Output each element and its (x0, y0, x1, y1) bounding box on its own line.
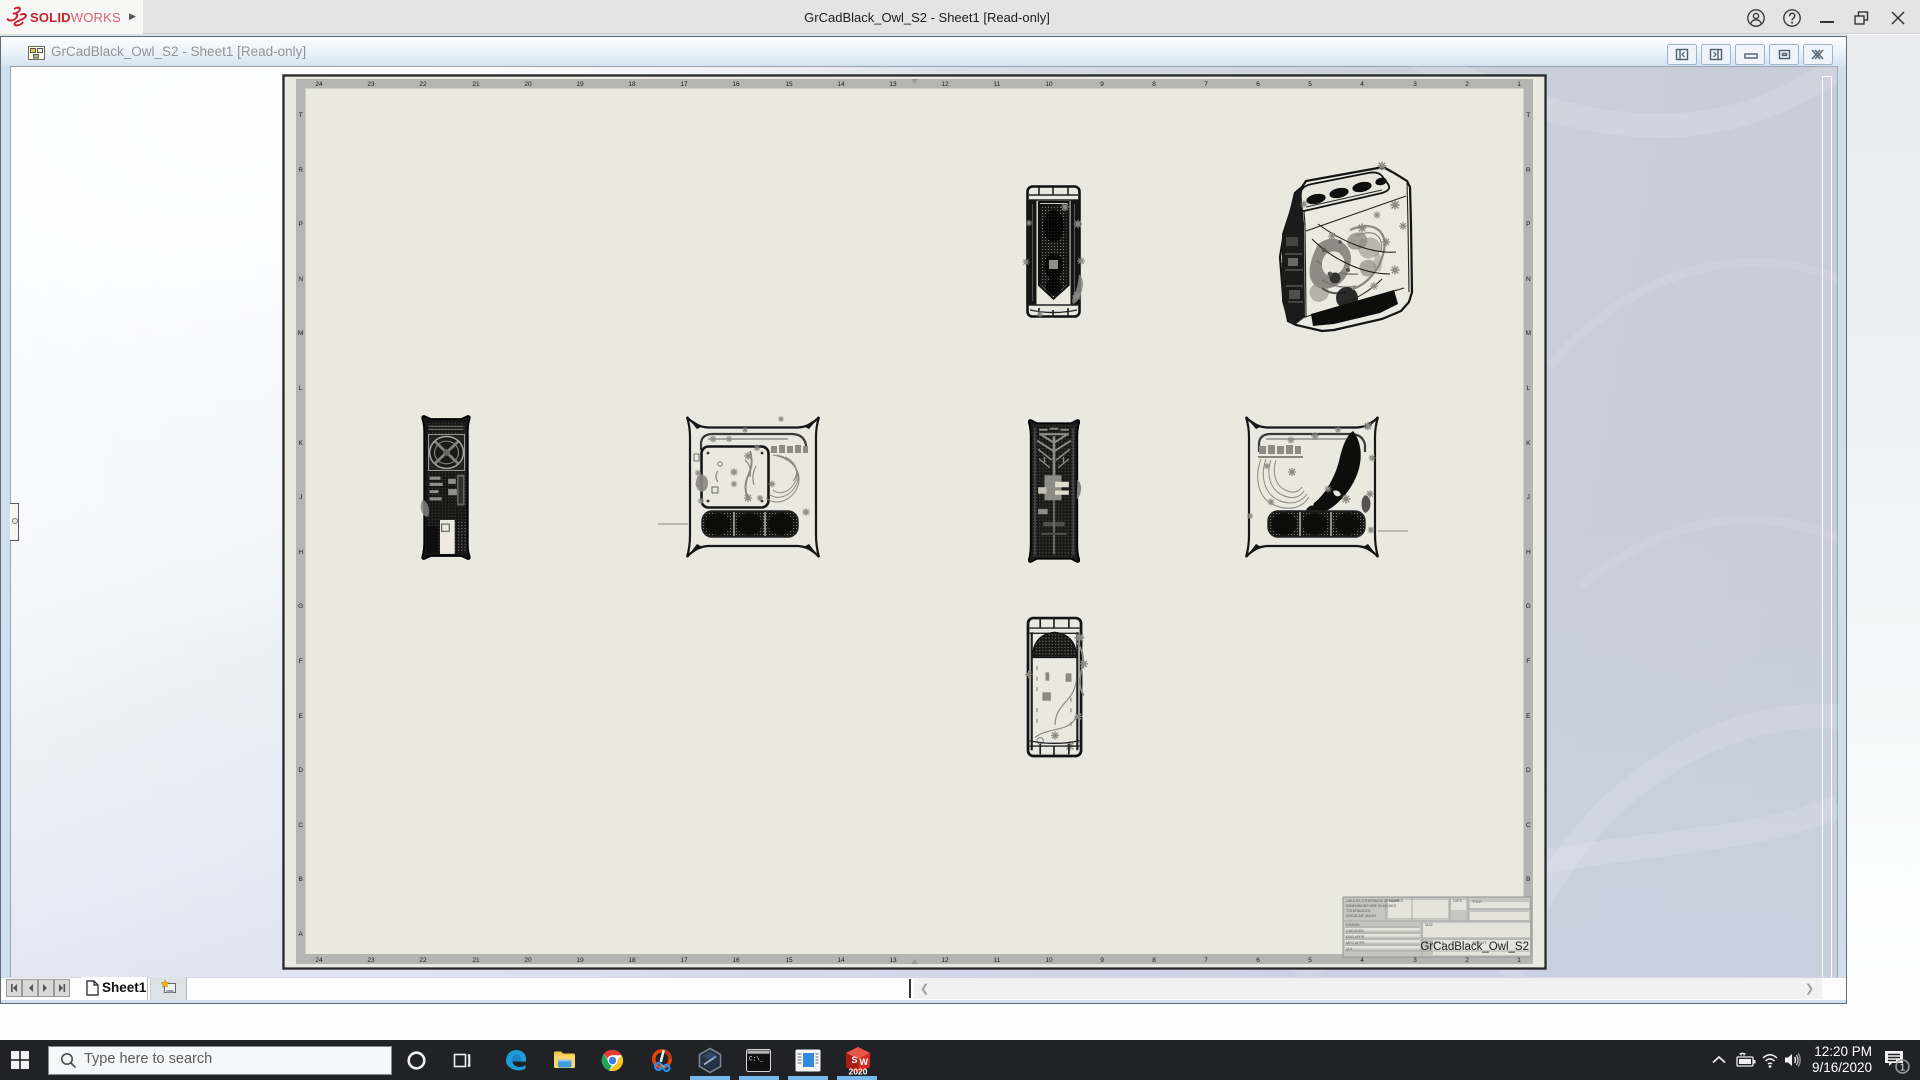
svg-text:14: 14 (837, 957, 845, 964)
svg-text:L: L (1526, 385, 1530, 392)
svg-text:6: 6 (1256, 957, 1260, 964)
svg-text:20: 20 (524, 81, 532, 88)
svg-text:K: K (1526, 440, 1531, 447)
svg-text:Q.A.: Q.A. (1346, 947, 1353, 951)
svg-text:12: 12 (941, 957, 949, 964)
svg-text:G: G (298, 603, 303, 610)
svg-text:12: 12 (941, 81, 949, 88)
svg-text:10: 10 (1045, 81, 1053, 88)
svg-text:14: 14 (837, 81, 845, 88)
svg-text:23: 23 (367, 957, 375, 964)
svg-text:D: D (298, 767, 303, 774)
svg-text:2: 2 (1465, 81, 1469, 88)
svg-text:8: 8 (1152, 957, 1156, 964)
svg-text:18: 18 (628, 81, 636, 88)
svg-text:24: 24 (315, 81, 323, 88)
svg-text:4: 4 (1360, 957, 1364, 964)
svg-text:1: 1 (1517, 81, 1521, 88)
svg-text:F: F (1526, 658, 1530, 665)
svg-text:D: D (1526, 767, 1531, 774)
svg-text:1: 1 (1900, 1062, 1906, 1074)
svg-text:16: 16 (732, 81, 740, 88)
svg-text:19: 19 (576, 81, 584, 88)
svg-text:13: 13 (889, 81, 897, 88)
svg-text:B: B (299, 876, 303, 883)
svg-text:SIZE: SIZE (1425, 923, 1434, 927)
svg-text:J: J (1527, 494, 1530, 501)
svg-text:1: 1 (1517, 957, 1521, 964)
svg-text:13: 13 (889, 957, 897, 964)
svg-text:F: F (299, 658, 303, 665)
svg-text:18: 18 (628, 957, 636, 964)
svg-text:9: 9 (1100, 81, 1104, 88)
svg-text:G: G (1526, 603, 1531, 610)
svg-text:20: 20 (524, 957, 532, 964)
svg-text:C:\_: C:\_ (749, 1056, 764, 1063)
svg-text:R: R (1526, 167, 1531, 174)
svg-text:P: P (299, 221, 303, 228)
svg-text:17: 17 (680, 81, 688, 88)
svg-text:6: 6 (1256, 81, 1260, 88)
svg-text:21: 21 (472, 957, 480, 964)
svg-text:DRAWN: DRAWN (1346, 923, 1360, 927)
svg-text:TOLERANCES:: TOLERANCES: (1346, 909, 1371, 913)
svg-text:21: 21 (472, 81, 480, 88)
svg-text:K: K (299, 440, 304, 447)
svg-text:22: 22 (419, 81, 427, 88)
svg-text:T: T (299, 112, 303, 119)
svg-text:E: E (1526, 713, 1531, 720)
svg-text:M: M (298, 330, 303, 337)
svg-text:11: 11 (994, 957, 1001, 964)
svg-text:C: C (298, 822, 303, 829)
svg-text:11: 11 (994, 81, 1001, 88)
svg-text:15: 15 (785, 957, 793, 964)
svg-text:N: N (1526, 276, 1531, 283)
svg-text:16: 16 (732, 957, 740, 964)
svg-text:3: 3 (1413, 81, 1417, 88)
svg-text:9: 9 (1100, 957, 1104, 964)
svg-text:DATE: DATE (1453, 899, 1463, 903)
svg-text:CHECKED: CHECKED (1346, 929, 1364, 933)
svg-text:3: 3 (1413, 957, 1417, 964)
svg-text:24: 24 (315, 957, 323, 964)
svg-text:5: 5 (1308, 81, 1312, 88)
svg-text:4: 4 (1360, 81, 1364, 88)
svg-text:17: 17 (680, 957, 688, 964)
svg-text:P: P (1526, 221, 1530, 228)
svg-text:MFG APPR: MFG APPR (1346, 941, 1365, 945)
svg-text:2020: 2020 (849, 1067, 868, 1077)
svg-text:C: C (1526, 822, 1531, 829)
svg-text:B: B (1526, 876, 1530, 883)
svg-text:S: S (852, 1055, 858, 1065)
svg-text:A: A (299, 931, 304, 938)
svg-text:H: H (298, 549, 303, 556)
svg-text:NAME: NAME (1389, 899, 1400, 903)
svg-text:H: H (1526, 549, 1531, 556)
svg-text:M: M (1526, 330, 1531, 337)
svg-text:J: J (299, 494, 302, 501)
svg-text:R: R (298, 167, 303, 174)
svg-text:10: 10 (1045, 957, 1053, 964)
svg-text:GrCadBlack_Owl_S2: GrCadBlack_Owl_S2 (1420, 941, 1529, 953)
svg-text:2: 2 (1465, 957, 1469, 964)
svg-text:8: 8 (1152, 81, 1156, 88)
svg-text:15: 15 (785, 81, 793, 88)
svg-text:DIMENSIONS ARE IN INCHES: DIMENSIONS ARE IN INCHES (1346, 904, 1397, 908)
svg-text:L: L (299, 385, 303, 392)
svg-text:T: T (1526, 112, 1530, 119)
svg-text:7: 7 (1204, 957, 1208, 964)
svg-text:ANGULAR: MACH: ANGULAR: MACH (1346, 914, 1376, 918)
svg-text:W: W (860, 1057, 869, 1067)
svg-text:19: 19 (576, 957, 584, 964)
svg-text:22: 22 (419, 957, 427, 964)
svg-text:N: N (298, 276, 303, 283)
svg-text:23: 23 (367, 81, 375, 88)
svg-text:ENG APPR: ENG APPR (1346, 935, 1365, 939)
svg-text:5: 5 (1308, 957, 1312, 964)
svg-text:TITLE:: TITLE: (1472, 900, 1483, 904)
svg-text:E: E (299, 713, 304, 720)
svg-text:7: 7 (1204, 81, 1208, 88)
